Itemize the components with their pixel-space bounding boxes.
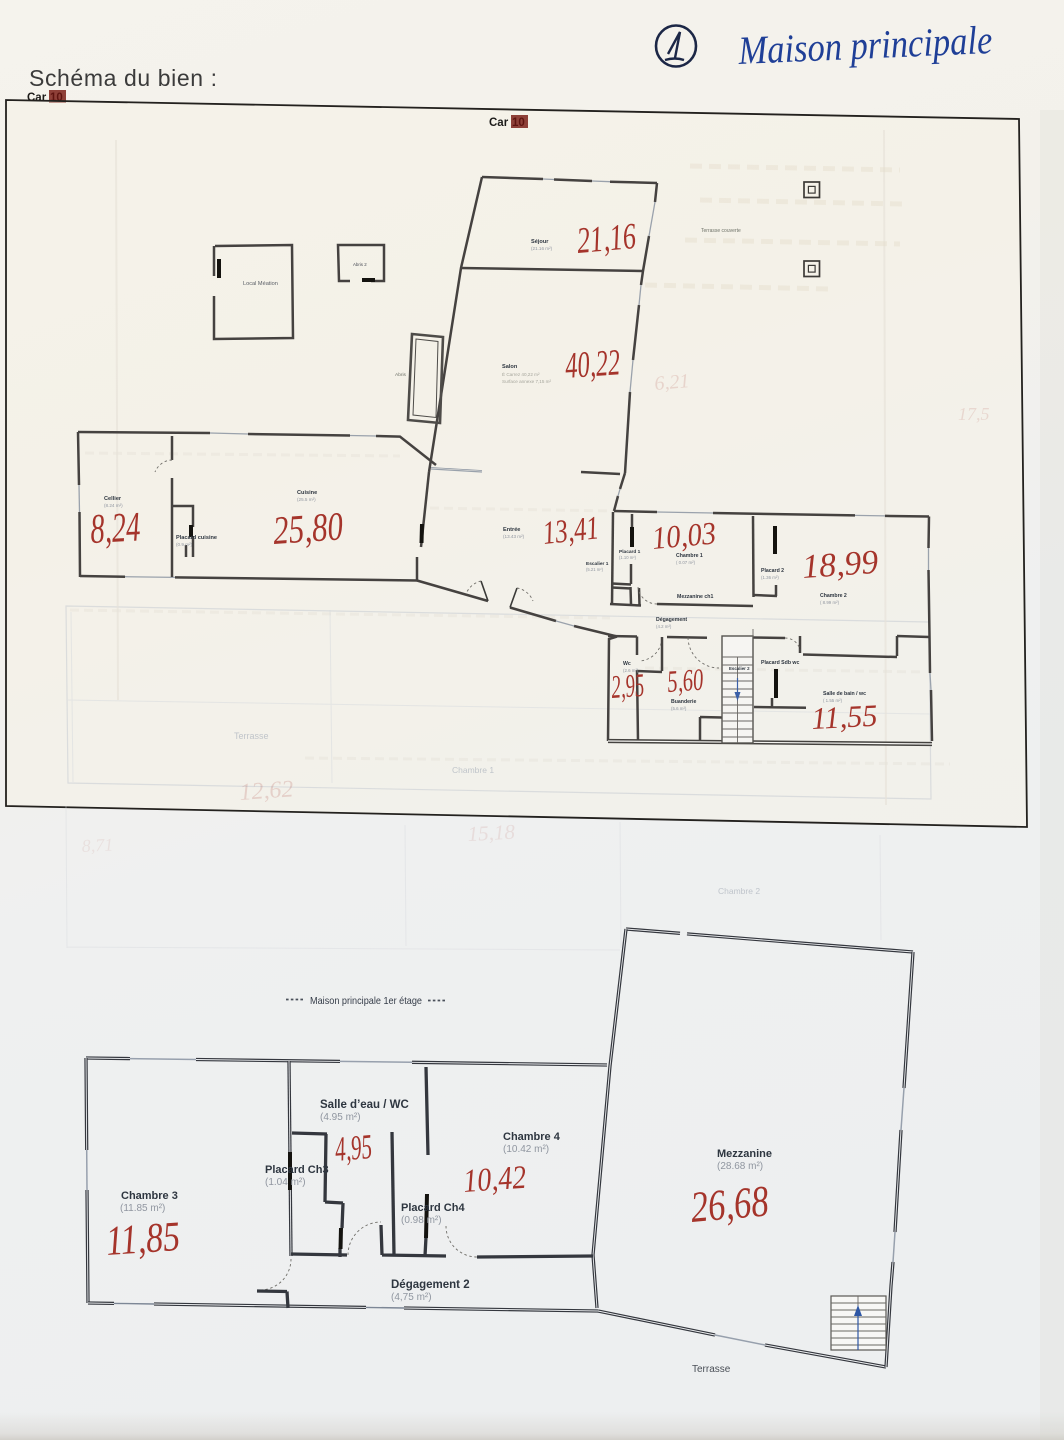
svg-text:18,99: 18,99 (801, 544, 879, 586)
svg-text:(4,75 m²): (4,75 m²) (391, 1292, 432, 1303)
svg-text:11,85: 11,85 (104, 1214, 181, 1265)
svg-text:17,5: 17,5 (958, 404, 990, 424)
svg-text:(11.85 m²): (11.85 m²) (120, 1203, 165, 1214)
svg-text:Placard Ch4: Placard Ch4 (401, 1202, 465, 1214)
svg-text:40,22: 40,22 (564, 342, 622, 387)
svg-text:Cuisine: Cuisine (297, 490, 317, 496)
svg-text:(13.43 m²): (13.43 m²) (503, 534, 525, 539)
svg-text:12,62: 12,62 (239, 776, 295, 806)
svg-text:(4.2 m²): (4.2 m²) (656, 624, 672, 629)
svg-text:Maison principale 1er étage: Maison principale 1er étage (310, 996, 422, 1007)
svg-text:21,16: 21,16 (575, 216, 638, 262)
svg-text:25,80: 25,80 (271, 503, 344, 553)
svg-text:Chambre 2: Chambre 2 (820, 593, 847, 599)
svg-text:( 8.99 m²): ( 8.99 m²) (820, 600, 840, 605)
svg-text:Chambre 1: Chambre 1 (676, 553, 703, 559)
svg-text:13,41: 13,41 (541, 510, 600, 552)
svg-text:Entrée: Entrée (503, 527, 520, 533)
svg-text:(1.04 m²): (1.04 m²) (265, 1177, 306, 1188)
svg-text:Salle de bain / wc: Salle de bain / wc (823, 691, 866, 697)
svg-text:Salon: Salon (502, 364, 518, 370)
svg-text:8,71: 8,71 (81, 834, 114, 856)
svg-text:(5.21 m²): (5.21 m²) (586, 567, 604, 572)
svg-text:(0.98 m²): (0.98 m²) (401, 1215, 442, 1226)
svg-text:Schéma du bien :: Schéma du bien : (29, 65, 218, 91)
svg-text:Abris: Abris (395, 372, 407, 378)
svg-text:Chambre 1: Chambre 1 (452, 765, 494, 775)
svg-text:(21.16 m²): (21.16 m²) (531, 246, 553, 251)
svg-text:Placard Sdb wc: Placard Sdb wc (761, 660, 799, 666)
svg-text:Chambre 4: Chambre 4 (503, 1131, 561, 1143)
svg-text:Surface annexe 7,15 m²: Surface annexe 7,15 m² (502, 379, 551, 384)
svg-text:Terrasse: Terrasse (692, 1364, 731, 1375)
svg-text:Dégagement: Dégagement (656, 617, 687, 623)
svg-text:(5.6 m²): (5.6 m²) (671, 706, 687, 711)
svg-text:(1.10 m²): (1.10 m²) (619, 555, 637, 560)
svg-text:15,18: 15,18 (467, 820, 516, 846)
svg-text:Escalier 2: Escalier 2 (729, 666, 750, 671)
svg-text:Buanderie: Buanderie (671, 699, 696, 705)
svg-text:(28.68 m²): (28.68 m²) (717, 1161, 763, 1172)
svg-text:Wc: Wc (623, 661, 631, 667)
svg-text:8,24: 8,24 (89, 504, 141, 553)
svg-text:26,68: 26,68 (689, 1176, 771, 1232)
svg-text:Placard cuisine: Placard cuisine (176, 535, 217, 541)
svg-text:11,55: 11,55 (811, 698, 879, 736)
svg-text:10,42: 10,42 (462, 1160, 527, 1200)
svg-text:( 0.07 m²): ( 0.07 m²) (676, 560, 696, 565)
svg-text:Placard 2: Placard 2 (761, 568, 784, 574)
svg-text:Mezzanine: Mezzanine (717, 1148, 772, 1160)
svg-text:Salle d’eau / WC: Salle d’eau / WC (320, 1099, 409, 1111)
svg-text:(1.36 m²): (1.36 m²) (761, 575, 779, 580)
svg-text:4,95: 4,95 (333, 1127, 373, 1169)
svg-text:10: 10 (512, 117, 525, 129)
svg-text:6,21: 6,21 (654, 370, 691, 395)
svg-text:(0.9 m²): (0.9 m²) (176, 542, 193, 547)
svg-text:2,95: 2,95 (610, 668, 645, 706)
svg-text:Placard Ch3: Placard Ch3 (265, 1164, 329, 1176)
svg-text:Cellier: Cellier (104, 496, 122, 502)
svg-text:Car: Car (489, 117, 509, 129)
svg-text:5,60: 5,60 (666, 662, 705, 699)
svg-text:Chambre 2: Chambre 2 (718, 886, 760, 896)
svg-text:Chambre 3: Chambre 3 (121, 1190, 178, 1202)
svg-text:(25.5 m²): (25.5 m²) (297, 497, 316, 502)
svg-text:Local Méation: Local Méation (243, 281, 278, 287)
svg-text:Abris 2: Abris 2 (353, 262, 367, 267)
svg-text:Séjour: Séjour (531, 239, 549, 245)
svg-text:Terrasse: Terrasse (234, 731, 269, 741)
svg-text:(4.95 m²): (4.95 m²) (320, 1112, 361, 1123)
svg-text:Mezzanine ch1: Mezzanine ch1 (677, 594, 713, 600)
svg-text:Terrasse couverte: Terrasse couverte (701, 228, 741, 234)
svg-text:Dégagement 2: Dégagement 2 (391, 1279, 470, 1291)
svg-text:10,03: 10,03 (650, 515, 717, 556)
svg-text:(10.42 m²): (10.42 m²) (503, 1144, 549, 1155)
svg-text:É Carrez 40,22 m²: É Carrez 40,22 m² (502, 371, 540, 377)
